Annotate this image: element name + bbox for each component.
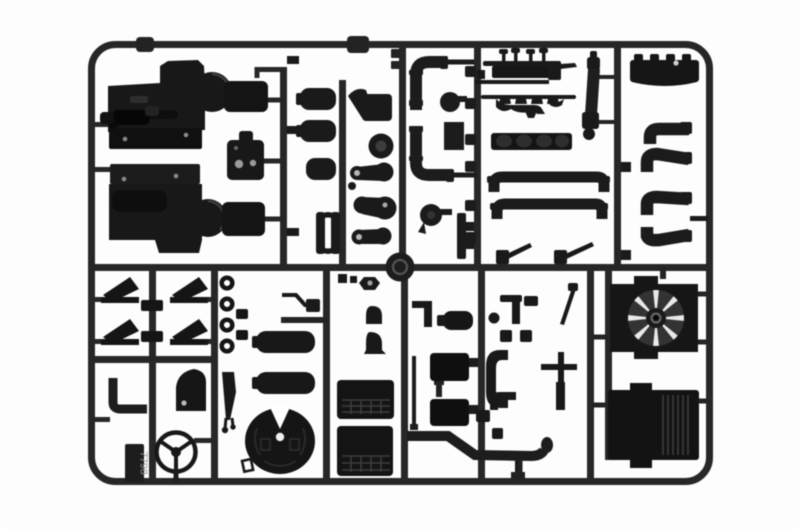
svg-text:7798: 7798 [138,451,150,475]
